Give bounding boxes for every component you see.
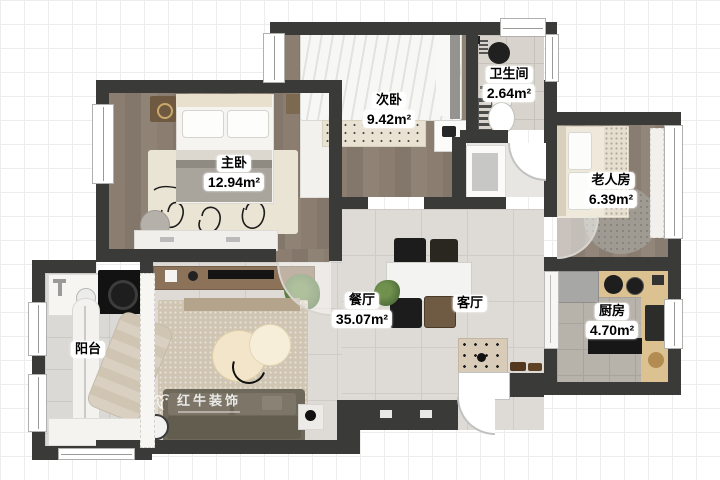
room-label-bathroom: 卫生间 2.64m² [483, 66, 535, 102]
bathroom-side-window [545, 34, 559, 82]
wall-segment [329, 197, 368, 209]
kitchen-basket [648, 352, 664, 368]
room-name: 卫生间 [485, 66, 532, 83]
kitchen-sliding-door [544, 271, 559, 349]
console-decor-box [165, 270, 177, 282]
washing-machine-door [108, 280, 138, 310]
wall-segment [96, 80, 342, 93]
wall-segment [96, 249, 276, 262]
master-wardrobe [134, 230, 278, 251]
second-desk-chair [442, 126, 456, 137]
wall-segment [360, 400, 458, 430]
wall-segment [508, 373, 544, 397]
wall-segment [544, 257, 681, 271]
room-label-living-room: 客厅 [453, 295, 487, 312]
dining-chair-top-right [430, 239, 458, 264]
dining-chair-bottom-right [424, 296, 456, 328]
master-window [92, 104, 114, 184]
elder-room-window [664, 125, 683, 239]
wall-segment [424, 197, 506, 209]
brand-watermark: 红牛装饰 [152, 390, 241, 413]
room-label-second-bedroom: 次卧 9.42m² [363, 92, 415, 128]
room-name: 厨房 [595, 303, 629, 320]
bathroom-top-window [500, 18, 546, 37]
stove-burner-right [626, 277, 644, 295]
room-area: 35.07m² [332, 310, 392, 328]
second-bed-pillow [436, 34, 450, 116]
console-decor-bowl [188, 271, 198, 281]
bathroom-shelf [479, 40, 488, 54]
wall-segment [337, 400, 360, 454]
second-bedroom-window [263, 33, 285, 83]
brand-bull-icon [152, 392, 172, 412]
wall-segment [544, 382, 681, 395]
wardrobe-handle [226, 237, 240, 242]
room-area: 6.39m² [585, 190, 637, 208]
master-bed-headboard [176, 94, 272, 107]
wall-segment [460, 130, 508, 143]
master-pillow-left [182, 110, 224, 138]
wall-segment [466, 35, 478, 130]
master-pillow-right [227, 110, 269, 138]
wall-segment [32, 354, 45, 374]
wall-segment [668, 271, 681, 301]
laundry-faucet [58, 281, 62, 296]
brand-name: 红牛装饰 [177, 390, 241, 409]
wall-segment [452, 137, 466, 199]
kitchen-small-appliance [652, 275, 664, 285]
entrance-door-frame [458, 372, 510, 400]
room-label-dining-room: 餐厅 35.07m² [332, 292, 392, 328]
living-rug-band [184, 298, 300, 311]
room-name: 阳台 [71, 341, 105, 358]
sofa-seat [167, 416, 301, 439]
room-name: 餐厅 [345, 292, 379, 309]
balcony-window-upper [28, 302, 47, 356]
room-name: 次卧 [372, 92, 406, 109]
kitchen-sink [645, 305, 665, 341]
laundry-faucet-bar [53, 279, 66, 283]
bathroom-sink [488, 42, 510, 64]
kitchen-sliding-door-rail [550, 275, 551, 343]
room-name: 主卧 [217, 155, 251, 172]
room-area: 12.94m² [204, 173, 264, 191]
tv [208, 270, 274, 279]
balcony-bottom-window [58, 448, 135, 460]
floor-plan: 主卧 12.94m² 次卧 9.42m² 卫生间 2.64m² 老人房 6.39… [0, 0, 720, 480]
room-area: 2.64m² [483, 84, 535, 102]
wardrobe-handle [160, 237, 174, 242]
drying-rack-rail [84, 306, 86, 434]
wall-segment [668, 237, 681, 271]
teapot [305, 410, 316, 421]
dining-chair-top-left [394, 238, 426, 264]
nightstand-lamp [157, 103, 173, 119]
brand-subline [178, 411, 240, 413]
balcony-curtain-door [140, 273, 155, 448]
wall-segment [329, 93, 342, 261]
room-name: 老人房 [587, 172, 634, 189]
room-area: 4.70m² [586, 321, 638, 339]
stove-burner-left [604, 275, 623, 294]
light-switch [380, 410, 392, 418]
hall-cabinet-front [472, 153, 498, 191]
wall-segment [32, 260, 45, 302]
elder-curtain [650, 128, 664, 238]
balcony-window-lower [28, 374, 47, 432]
room-name: 客厅 [453, 295, 487, 312]
light-switch [420, 410, 432, 418]
room-area: 9.42m² [363, 110, 415, 128]
room-label-kitchen: 厨房 4.70m² [586, 303, 638, 339]
second-bed-headboard [450, 31, 460, 119]
room-label-elder-room: 老人房 6.39m² [585, 172, 637, 208]
room-label-balcony: 阳台 [71, 341, 105, 358]
sofa-pillow [262, 396, 282, 410]
wall-segment [544, 112, 681, 125]
kitchen-fridge [557, 271, 599, 303]
brand-text-block: 红牛装饰 [177, 390, 241, 413]
wall-segment [270, 22, 478, 35]
kitchen-cabinet [588, 338, 642, 354]
elder-pillow-top [568, 132, 592, 170]
shoes [528, 363, 542, 371]
shoes [510, 362, 526, 371]
elder-bed-headboard [557, 126, 566, 216]
kitchen-window [664, 299, 683, 349]
doormat-center-dot [477, 353, 486, 362]
room-label-master-bedroom: 主卧 12.94m² [204, 155, 264, 191]
master-door-threshold [276, 249, 329, 262]
wall-segment [140, 260, 153, 273]
